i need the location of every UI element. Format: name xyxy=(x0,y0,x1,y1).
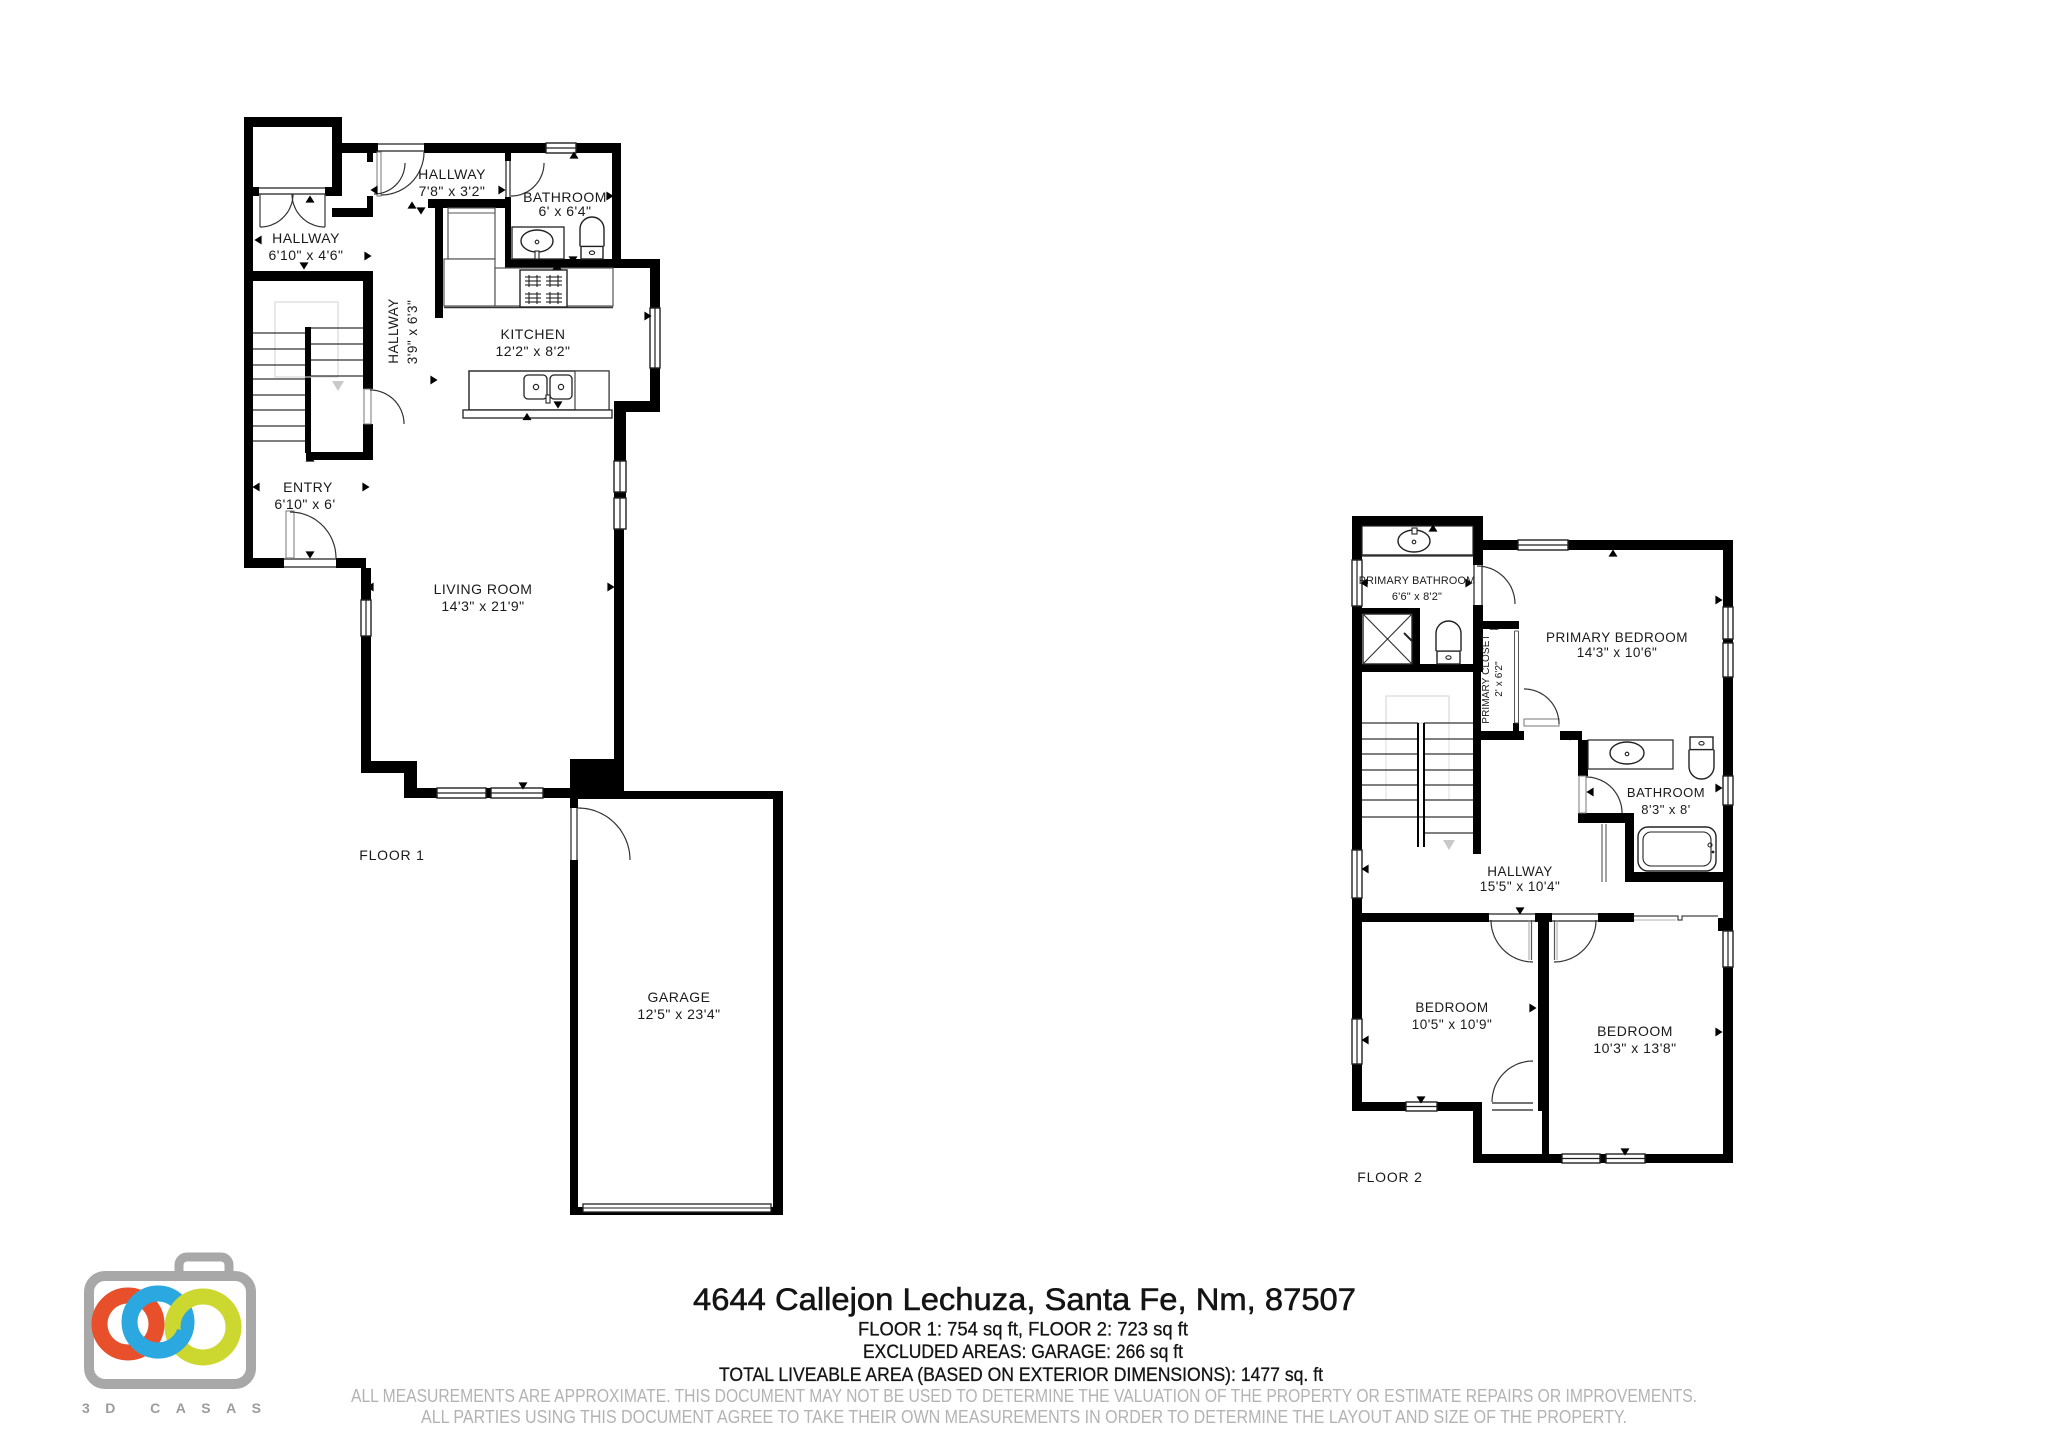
svg-text:PRIMARY BEDROOM: PRIMARY BEDROOM xyxy=(1546,630,1688,645)
svg-text:15'5" x 10'4": 15'5" x 10'4" xyxy=(1480,879,1561,894)
svg-text:HALLWAY: HALLWAY xyxy=(386,298,401,364)
svg-text:4644 Callejon Lechuza, Santa F: 4644 Callejon Lechuza, Santa Fe, Nm, 875… xyxy=(693,1281,1356,1317)
svg-text:12'2" x 8'2": 12'2" x 8'2" xyxy=(496,343,571,359)
svg-text:10'5" x 10'9": 10'5" x 10'9" xyxy=(1412,1017,1493,1032)
svg-text:14'3" x 21'9": 14'3" x 21'9" xyxy=(441,598,524,614)
svg-text:12'5" x 23'4": 12'5" x 23'4" xyxy=(637,1006,720,1022)
svg-text:6'6" x 8'2": 6'6" x 8'2" xyxy=(1392,591,1442,603)
svg-text:8'3" x 8': 8'3" x 8' xyxy=(1641,802,1691,817)
svg-text:ALL MEASUREMENTS ARE APPROXIMA: ALL MEASUREMENTS ARE APPROXIMATE. THIS D… xyxy=(351,1386,1697,1406)
svg-text:HALLWAY: HALLWAY xyxy=(418,166,486,182)
svg-text:6'10" x 4'6": 6'10" x 4'6" xyxy=(269,247,344,263)
svg-text:6' x 6'4": 6' x 6'4" xyxy=(539,203,592,219)
svg-text:7'8" x 3'2": 7'8" x 3'2" xyxy=(419,183,486,199)
svg-text:ALL PARTIES USING THIS DOCUMEN: ALL PARTIES USING THIS DOCUMENT AGREE TO… xyxy=(421,1407,1627,1427)
svg-text:PRIMARY BATHROOM: PRIMARY BATHROOM xyxy=(1359,575,1476,587)
svg-text:FLOOR 1: 754 sq ft, FLOOR 2: 7: FLOOR 1: 754 sq ft, FLOOR 2: 723 sq ft xyxy=(858,1320,1189,1341)
svg-text:HALLWAY: HALLWAY xyxy=(272,230,340,246)
svg-text:BEDROOM: BEDROOM xyxy=(1415,1000,1488,1015)
svg-text:BEDROOM: BEDROOM xyxy=(1597,1023,1673,1039)
svg-text:PRIMARY CLOSET: PRIMARY CLOSET xyxy=(1481,634,1492,723)
svg-text:EXCLUDED AREAS: GARAGE: 266 sq: EXCLUDED AREAS: GARAGE: 266 sq ft xyxy=(863,1342,1184,1363)
svg-text:TOTAL LIVEABLE AREA (BASED ON: TOTAL LIVEABLE AREA (BASED ON EXTERIOR D… xyxy=(719,1365,1324,1386)
svg-text:BATHROOM: BATHROOM xyxy=(1627,785,1705,800)
svg-text:14'3" x 10'6": 14'3" x 10'6" xyxy=(1577,645,1658,660)
svg-text:6'10" x 6': 6'10" x 6' xyxy=(274,496,335,512)
svg-text:3'9" x 6'3": 3'9" x 6'3" xyxy=(405,300,420,365)
svg-text:HALLWAY: HALLWAY xyxy=(1487,864,1553,879)
svg-text:GARAGE: GARAGE xyxy=(648,989,711,1005)
svg-text:2' x 6'2": 2' x 6'2" xyxy=(1494,661,1505,697)
svg-text:ENTRY: ENTRY xyxy=(283,479,333,495)
svg-text:10'3" x 13'8": 10'3" x 13'8" xyxy=(1593,1040,1676,1056)
svg-text:KITCHEN: KITCHEN xyxy=(501,326,566,342)
svg-text:LIVING ROOM: LIVING ROOM xyxy=(434,581,533,597)
svg-text:FLOOR 1: FLOOR 1 xyxy=(359,847,425,863)
svg-text:FLOOR 2: FLOOR 2 xyxy=(1357,1169,1423,1185)
